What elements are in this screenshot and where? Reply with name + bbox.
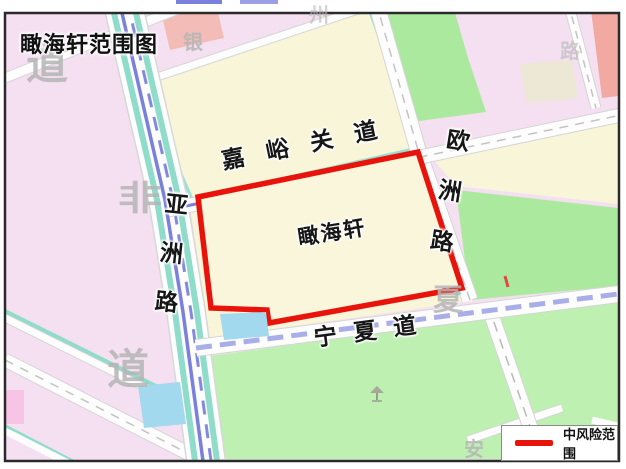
map-title: 瞰海轩范围图 <box>20 27 158 59</box>
top-margin-transit-strip-2 <box>240 0 278 4</box>
watermark-an: 安 <box>464 440 484 460</box>
legend-label: 中风险范围 <box>563 424 617 462</box>
watermark-dao-bottomleft: 道 <box>107 349 149 391</box>
watermark-zhou: 州 <box>309 6 329 26</box>
watermark-yin: 银 <box>183 33 203 53</box>
pond-notch <box>220 312 269 340</box>
watermark-fei: 非 <box>118 182 162 216</box>
top-margin-transit-strip <box>176 0 222 4</box>
risk-line-icon <box>515 440 553 446</box>
watermark-lu: 路 <box>560 42 580 62</box>
block-beige-patch <box>520 60 578 103</box>
watermark-xia: 夏 <box>433 286 463 316</box>
block-east-green <box>456 190 618 300</box>
legend: 中风险范围 <box>501 425 618 461</box>
map-screenshot: 道 银 州 路 非 道 夏 安 瞰海轩范围图 嘉峪关道 欧洲路 亚洲路 宁夏道 … <box>0 0 626 469</box>
